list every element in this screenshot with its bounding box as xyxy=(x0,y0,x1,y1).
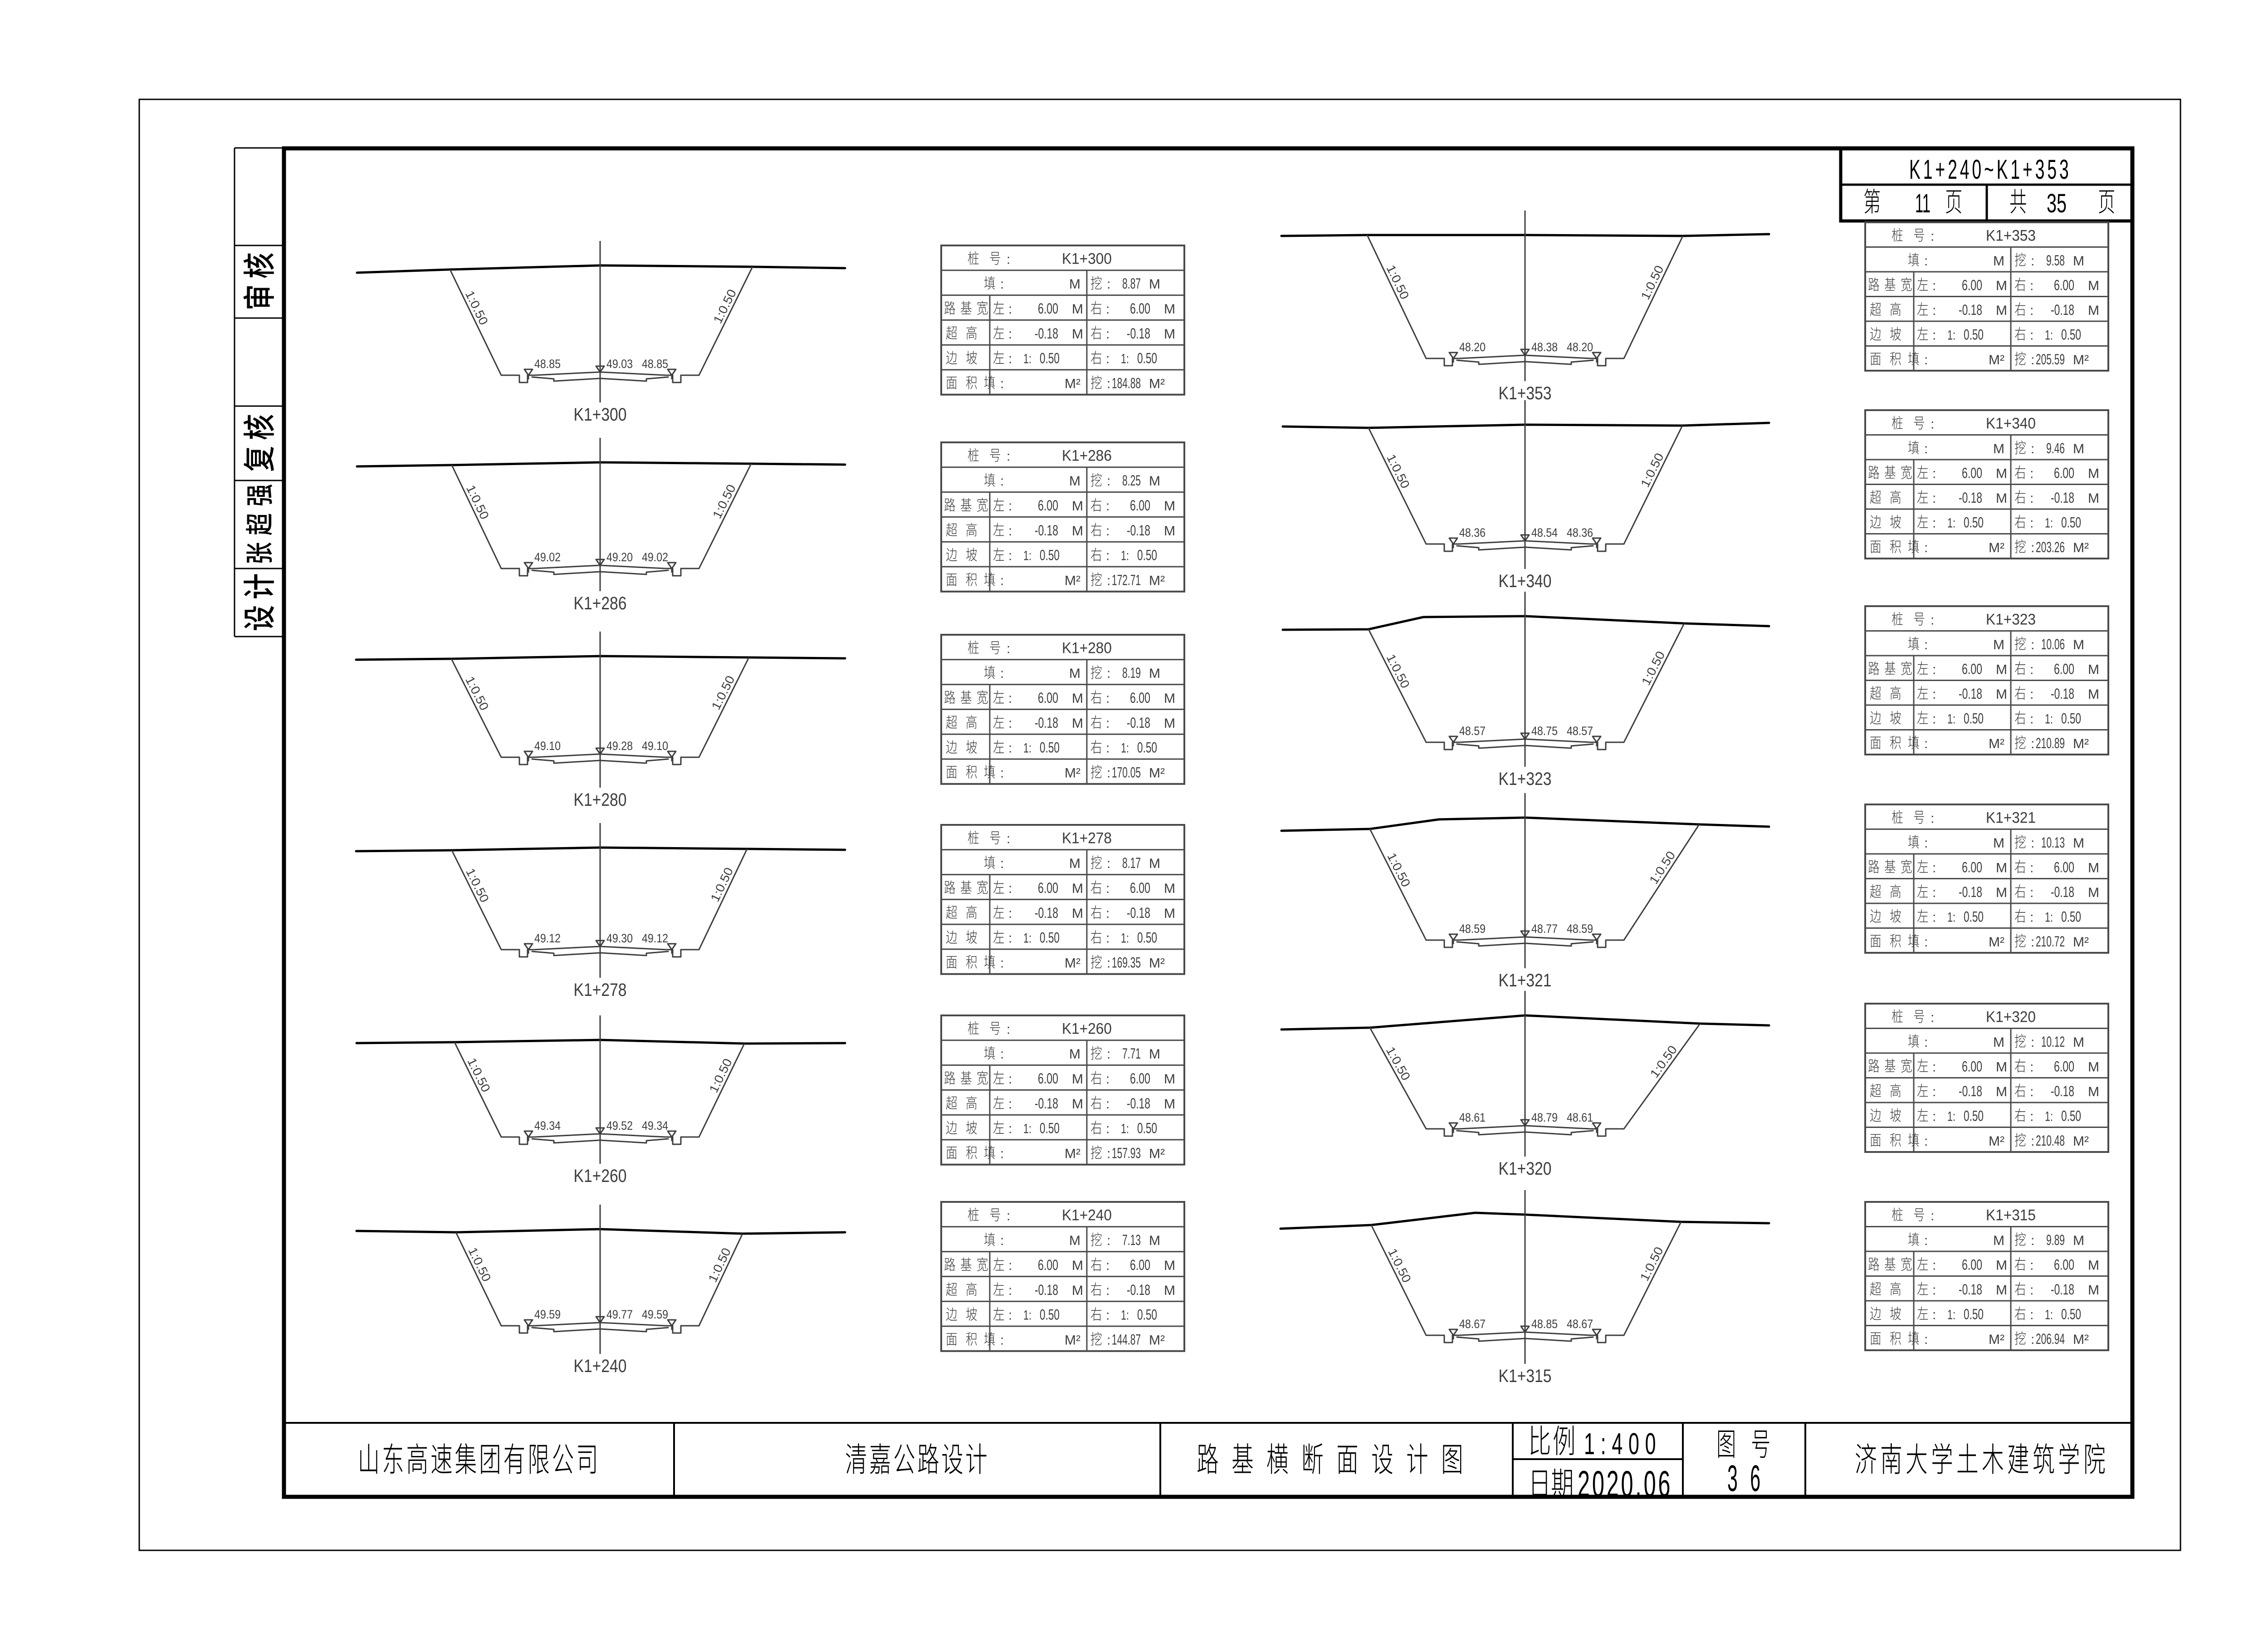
svg-text:M: M xyxy=(1069,474,1080,489)
svg-text::: : xyxy=(1932,466,1936,481)
svg-text::: : xyxy=(2030,1283,2033,1298)
svg-text:M: M xyxy=(1069,856,1080,871)
svg-text::: : xyxy=(1924,254,1928,269)
svg-text:-0.18: -0.18 xyxy=(2051,1281,2074,1298)
svg-text::: : xyxy=(1008,1097,1012,1112)
svg-text:M: M xyxy=(1164,1072,1175,1087)
svg-text::: : xyxy=(1931,417,1934,431)
svg-text:M: M xyxy=(2088,687,2099,702)
svg-text:1:: 1: xyxy=(1947,328,1955,343)
svg-text::: : xyxy=(1932,711,1936,726)
svg-text::: : xyxy=(2030,1307,2033,1322)
svg-text::: : xyxy=(1106,906,1110,921)
svg-text:48.67: 48.67 xyxy=(1459,1317,1486,1331)
svg-text::: : xyxy=(1106,327,1110,342)
svg-text:0.50: 0.50 xyxy=(1137,930,1157,946)
svg-text:48.20: 48.20 xyxy=(1459,340,1486,354)
svg-text::: : xyxy=(1008,931,1012,946)
svg-text::: : xyxy=(2030,515,2033,530)
svg-text::: : xyxy=(1932,278,1936,293)
svg-text:M: M xyxy=(2088,278,2099,293)
svg-text:210.89: 210.89 xyxy=(2036,735,2065,751)
svg-text::: : xyxy=(1008,906,1012,921)
svg-text:170.05: 170.05 xyxy=(1112,764,1141,780)
svg-text:6.00: 6.00 xyxy=(1130,300,1150,317)
svg-text::: : xyxy=(2030,885,2033,900)
svg-text:-0.18: -0.18 xyxy=(1127,1282,1150,1298)
svg-text::: : xyxy=(1000,765,1004,780)
svg-text:0.50: 0.50 xyxy=(1040,1120,1060,1137)
svg-text:157.93: 157.93 xyxy=(1112,1145,1141,1161)
svg-text::: : xyxy=(1932,687,1936,702)
svg-text:1:: 1: xyxy=(1121,1308,1129,1323)
svg-text::: : xyxy=(1107,956,1110,970)
svg-text:-0.18: -0.18 xyxy=(1959,884,1982,900)
svg-text:M: M xyxy=(1149,1047,1160,1062)
svg-text::: : xyxy=(1924,441,1928,456)
svg-text::: : xyxy=(1924,736,1928,751)
svg-text::: : xyxy=(1107,856,1110,871)
svg-text:49.10: 49.10 xyxy=(642,739,668,753)
svg-text:M: M xyxy=(1072,524,1083,539)
svg-text:48.85: 48.85 xyxy=(642,357,668,371)
svg-text::: : xyxy=(1924,353,1928,368)
svg-text:M: M xyxy=(1072,906,1083,921)
svg-text:K1+280: K1+280 xyxy=(1062,639,1112,657)
svg-text:1:: 1: xyxy=(1023,741,1031,756)
svg-text:1:: 1: xyxy=(1023,352,1031,367)
svg-text::: : xyxy=(1008,716,1012,731)
svg-text:6.00: 6.00 xyxy=(1962,661,1982,677)
svg-text:M²: M² xyxy=(1065,1146,1080,1161)
svg-text::: : xyxy=(1106,691,1110,706)
svg-text::: : xyxy=(1932,885,1936,900)
svg-text:48.20: 48.20 xyxy=(1567,340,1593,354)
svg-text:48.57: 48.57 xyxy=(1459,724,1486,738)
svg-text:1:: 1: xyxy=(2045,1109,2053,1124)
svg-text:M: M xyxy=(1993,254,2004,269)
svg-text:0.50: 0.50 xyxy=(1040,1307,1060,1323)
svg-text:169.35: 169.35 xyxy=(1112,954,1141,970)
svg-text::: : xyxy=(1007,1208,1010,1223)
svg-text:48.59: 48.59 xyxy=(1567,922,1593,936)
svg-text:0.50: 0.50 xyxy=(1137,1307,1157,1323)
svg-text:K1+240~K1+353: K1+240~K1+353 xyxy=(1909,154,2072,185)
svg-text:6.00: 6.00 xyxy=(1130,690,1150,706)
svg-text::: : xyxy=(2030,1109,2033,1124)
svg-text:184.88: 184.88 xyxy=(1112,375,1141,391)
svg-text:49.34: 49.34 xyxy=(642,1119,668,1132)
svg-text:M: M xyxy=(1996,662,2007,677)
svg-text:0.50: 0.50 xyxy=(1137,740,1157,756)
svg-text:6.00: 6.00 xyxy=(1130,880,1150,896)
svg-text::: : xyxy=(1106,741,1110,756)
svg-text:6.00: 6.00 xyxy=(2054,859,2074,875)
svg-text::: : xyxy=(1007,252,1010,267)
svg-text:M²: M² xyxy=(2073,1332,2089,1347)
svg-text:6.00: 6.00 xyxy=(1038,880,1058,896)
svg-text::: : xyxy=(1008,1122,1012,1137)
svg-text::: : xyxy=(1931,229,1934,244)
svg-text:-0.18: -0.18 xyxy=(1035,325,1058,342)
svg-text:35: 35 xyxy=(2047,189,2067,218)
svg-text:M: M xyxy=(1993,836,2004,851)
svg-text:1:: 1: xyxy=(1947,515,1955,530)
svg-text::: : xyxy=(2030,1084,2033,1099)
svg-text:K1+278: K1+278 xyxy=(1062,829,1112,847)
svg-text:49.10: 49.10 xyxy=(534,739,561,753)
svg-text::: : xyxy=(1007,831,1010,846)
svg-text:0.50: 0.50 xyxy=(1040,547,1060,564)
svg-text:1:: 1: xyxy=(1023,1308,1031,1323)
svg-text:M: M xyxy=(2088,1059,2099,1074)
svg-text:48.75: 48.75 xyxy=(1531,724,1558,738)
svg-text::: : xyxy=(2030,687,2033,702)
svg-text::: : xyxy=(1107,376,1110,391)
svg-text::: : xyxy=(1932,662,1936,677)
svg-text:M: M xyxy=(1164,327,1175,342)
svg-text:K1+300: K1+300 xyxy=(1062,250,1112,267)
svg-text:-0.18: -0.18 xyxy=(1127,905,1150,921)
svg-text:M: M xyxy=(1996,885,2007,900)
svg-text::: : xyxy=(2031,637,2034,652)
svg-text::: : xyxy=(1924,836,1928,851)
svg-text:210.48: 210.48 xyxy=(2036,1132,2065,1149)
svg-text::: : xyxy=(1107,474,1110,489)
svg-text:M: M xyxy=(1993,1035,2004,1050)
svg-text:6.00: 6.00 xyxy=(1962,859,1982,875)
svg-text:M: M xyxy=(1164,691,1175,706)
svg-text:6.00: 6.00 xyxy=(1962,1256,1982,1273)
svg-text::: : xyxy=(1000,1047,1004,1062)
svg-text:6.00: 6.00 xyxy=(1130,497,1150,514)
svg-text:1:: 1: xyxy=(1121,741,1129,756)
svg-text:M: M xyxy=(2088,303,2099,318)
svg-text:1:: 1: xyxy=(1947,1307,1955,1322)
svg-text:M: M xyxy=(1069,666,1080,681)
svg-text:M: M xyxy=(1164,499,1175,514)
svg-text:-0.18: -0.18 xyxy=(1959,302,1982,318)
svg-text:K1+323: K1+323 xyxy=(1499,769,1552,789)
svg-text:M: M xyxy=(1996,466,2007,481)
svg-text:M²: M² xyxy=(1149,376,1165,391)
svg-text::: : xyxy=(1107,1146,1110,1161)
svg-text:7.13: 7.13 xyxy=(1122,1232,1141,1248)
svg-text::: : xyxy=(2031,736,2034,751)
svg-text:10.12: 10.12 xyxy=(2041,1034,2065,1050)
svg-text:-0.18: -0.18 xyxy=(1127,325,1150,342)
svg-text:49.02: 49.02 xyxy=(642,550,668,564)
svg-text::: : xyxy=(2031,1035,2034,1050)
svg-text:0.50: 0.50 xyxy=(1964,1306,1984,1322)
svg-text:M: M xyxy=(1164,716,1175,731)
svg-text::: : xyxy=(2031,935,2034,950)
svg-text:M: M xyxy=(1164,524,1175,539)
svg-text::: : xyxy=(1000,1233,1004,1248)
svg-text:49.12: 49.12 xyxy=(534,931,561,945)
svg-text::: : xyxy=(2030,860,2033,875)
svg-text:M: M xyxy=(2088,860,2099,875)
svg-text:6.00: 6.00 xyxy=(1962,277,1982,293)
svg-text:49.02: 49.02 xyxy=(534,550,561,564)
svg-text:49.59: 49.59 xyxy=(642,1308,668,1321)
svg-text:M: M xyxy=(1993,637,2004,652)
svg-text:49.12: 49.12 xyxy=(642,931,668,945)
svg-text::: : xyxy=(1007,449,1010,464)
svg-text:6.00: 6.00 xyxy=(1038,497,1058,514)
svg-text:K1+280: K1+280 xyxy=(574,790,627,810)
svg-text::: : xyxy=(1106,352,1110,367)
svg-text:48.38: 48.38 xyxy=(1531,340,1558,354)
svg-text:M: M xyxy=(1996,303,2007,318)
svg-text:M: M xyxy=(2073,441,2084,456)
svg-text::: : xyxy=(2030,910,2033,925)
svg-text:210.72: 210.72 xyxy=(2036,933,2065,950)
svg-text:1:: 1: xyxy=(2045,910,2053,925)
svg-text::: : xyxy=(1932,1059,1936,1074)
svg-text:49.03: 49.03 xyxy=(606,357,633,371)
svg-text:1:: 1: xyxy=(1023,549,1031,564)
svg-text::: : xyxy=(1932,910,1936,925)
svg-text:6.00: 6.00 xyxy=(1962,465,1982,481)
svg-text:0.50: 0.50 xyxy=(1040,930,1060,946)
svg-text::: : xyxy=(2031,836,2034,851)
svg-text::: : xyxy=(1931,811,1934,826)
svg-text:M: M xyxy=(1993,441,2004,456)
svg-text::: : xyxy=(2031,254,2034,269)
svg-text:206.94: 206.94 xyxy=(2036,1331,2065,1347)
svg-text::: : xyxy=(2030,278,2033,293)
svg-text:1:: 1: xyxy=(1023,931,1031,946)
svg-text:M²: M² xyxy=(1149,573,1165,588)
svg-text:-0.18: -0.18 xyxy=(1035,1095,1058,1112)
svg-text::: : xyxy=(1000,277,1004,292)
svg-text:36: 36 xyxy=(1727,1457,1773,1499)
svg-text:203.26: 203.26 xyxy=(2036,539,2065,555)
svg-text:1:: 1: xyxy=(1121,549,1129,564)
svg-text::: : xyxy=(1106,1097,1110,1112)
svg-text:1:: 1: xyxy=(1947,1109,1955,1124)
svg-text:48.36: 48.36 xyxy=(1567,526,1593,539)
svg-text:8.17: 8.17 xyxy=(1122,855,1141,871)
svg-text:M: M xyxy=(1072,499,1083,514)
svg-text:M²: M² xyxy=(2073,736,2089,751)
svg-text:8.87: 8.87 xyxy=(1122,275,1141,292)
svg-text:M: M xyxy=(1149,856,1160,871)
svg-text:-0.18: -0.18 xyxy=(1959,1083,1982,1099)
svg-text:144.87: 144.87 xyxy=(1112,1331,1141,1348)
svg-text::: : xyxy=(1107,573,1110,588)
svg-text:M: M xyxy=(1072,716,1083,731)
svg-text::: : xyxy=(1000,1146,1004,1161)
svg-text:M²: M² xyxy=(1149,765,1165,780)
svg-text:K1+320: K1+320 xyxy=(1499,1159,1552,1179)
svg-text:48.67: 48.67 xyxy=(1567,1317,1593,1331)
svg-text:6.00: 6.00 xyxy=(1130,1257,1150,1273)
svg-text:48.54: 48.54 xyxy=(1531,526,1558,539)
svg-text::: : xyxy=(1000,1333,1004,1348)
svg-text:-0.18: -0.18 xyxy=(1035,522,1058,539)
svg-text::: : xyxy=(1008,1283,1012,1298)
svg-text:M²: M² xyxy=(1989,736,2004,751)
svg-text:49.30: 49.30 xyxy=(606,931,633,945)
svg-text::: : xyxy=(1106,499,1110,514)
svg-text::: : xyxy=(1924,1332,1928,1347)
svg-text::: : xyxy=(1000,956,1004,970)
svg-text:K1+240: K1+240 xyxy=(1062,1206,1112,1224)
svg-text:M²: M² xyxy=(2073,540,2089,555)
svg-text:K1+278: K1+278 xyxy=(574,980,627,1000)
svg-text:K1+340: K1+340 xyxy=(1499,571,1552,591)
svg-text::: : xyxy=(1107,666,1110,681)
svg-text:K1+340: K1+340 xyxy=(1986,415,2036,432)
svg-text:-0.18: -0.18 xyxy=(2051,302,2074,318)
svg-text:-0.18: -0.18 xyxy=(1959,686,1982,702)
svg-text:M: M xyxy=(2088,885,2099,900)
svg-text:6.00: 6.00 xyxy=(1038,1070,1058,1087)
svg-text::: : xyxy=(1106,524,1110,539)
svg-text::: : xyxy=(1931,613,1934,627)
svg-text:M: M xyxy=(1072,1097,1083,1112)
svg-text:-0.18: -0.18 xyxy=(1127,715,1150,731)
svg-text::: : xyxy=(2031,540,2034,555)
svg-text:M: M xyxy=(2088,1283,2099,1298)
svg-text:6.00: 6.00 xyxy=(2054,465,2074,481)
svg-text:M: M xyxy=(2073,1233,2084,1248)
svg-text:K1+286: K1+286 xyxy=(574,593,627,613)
svg-text::: : xyxy=(2031,441,2034,456)
svg-text::: : xyxy=(1924,637,1928,652)
svg-text:K1+321: K1+321 xyxy=(1499,970,1552,990)
svg-text::: : xyxy=(1932,1307,1936,1322)
svg-text:M: M xyxy=(1072,881,1083,896)
svg-text:M²: M² xyxy=(1989,1134,2004,1149)
svg-text:K1+260: K1+260 xyxy=(574,1166,627,1186)
svg-text::: : xyxy=(1008,352,1012,367)
svg-text:K1+315: K1+315 xyxy=(1499,1366,1552,1386)
svg-text:48.85: 48.85 xyxy=(534,357,561,371)
svg-text::: : xyxy=(1000,666,1004,681)
svg-text:-0.18: -0.18 xyxy=(1127,522,1150,539)
svg-text::: : xyxy=(1008,549,1012,564)
svg-text:0.50: 0.50 xyxy=(2061,908,2081,925)
svg-text:6.00: 6.00 xyxy=(1130,1070,1150,1087)
svg-text:10.13: 10.13 xyxy=(2041,834,2065,851)
svg-text:48.59: 48.59 xyxy=(1459,922,1486,936)
svg-text:M²: M² xyxy=(2073,353,2089,368)
svg-text:0.50: 0.50 xyxy=(1137,350,1157,367)
svg-text:-0.18: -0.18 xyxy=(2051,1083,2074,1099)
svg-text::: : xyxy=(1107,1047,1110,1062)
svg-text:0.50: 0.50 xyxy=(2061,326,2081,343)
svg-text:48.36: 48.36 xyxy=(1459,526,1486,539)
svg-text:M: M xyxy=(2073,836,2084,851)
svg-text:M: M xyxy=(1996,1258,2007,1273)
svg-text:M: M xyxy=(1996,1283,2007,1298)
svg-text::: : xyxy=(1008,881,1012,896)
svg-text::: : xyxy=(2031,353,2034,368)
svg-text::: : xyxy=(1106,1283,1110,1298)
svg-text::: : xyxy=(1008,1308,1012,1323)
svg-text::: : xyxy=(2030,662,2033,677)
svg-text:M²: M² xyxy=(1065,573,1080,588)
svg-text::: : xyxy=(1932,860,1936,875)
svg-text:K1+321: K1+321 xyxy=(1986,809,2036,826)
svg-text:-0.18: -0.18 xyxy=(2051,884,2074,900)
svg-text:M²: M² xyxy=(2073,935,2089,950)
svg-text::: : xyxy=(1924,1035,1928,1050)
svg-text:2020.06: 2020.06 xyxy=(1578,1464,1672,1505)
svg-text:M: M xyxy=(1996,687,2007,702)
svg-text::: : xyxy=(1932,303,1936,318)
svg-text::: : xyxy=(1106,549,1110,564)
svg-text::: : xyxy=(1007,641,1010,656)
svg-text:M²: M² xyxy=(1149,1146,1165,1161)
svg-text:-0.18: -0.18 xyxy=(1959,1281,1982,1298)
svg-text::: : xyxy=(1932,1258,1936,1273)
svg-text:M²: M² xyxy=(1149,956,1165,970)
svg-text:M: M xyxy=(1072,1258,1083,1273)
svg-text:K1+323: K1+323 xyxy=(1986,611,2036,628)
svg-text:M: M xyxy=(1072,327,1083,342)
svg-text::: : xyxy=(2030,303,2033,318)
svg-text:48.57: 48.57 xyxy=(1567,724,1593,738)
svg-text:M²: M² xyxy=(1149,1333,1165,1348)
svg-text:-0.18: -0.18 xyxy=(2051,490,2074,506)
svg-text:49.59: 49.59 xyxy=(534,1308,561,1321)
svg-text:1:: 1: xyxy=(1121,352,1129,367)
svg-text:M²: M² xyxy=(2073,1134,2089,1149)
svg-text:M: M xyxy=(1072,691,1083,706)
svg-text:0.50: 0.50 xyxy=(2061,1108,2081,1124)
svg-text:M: M xyxy=(1996,1084,2007,1099)
svg-text:M²: M² xyxy=(1989,935,2004,950)
svg-text:9.46: 9.46 xyxy=(2046,440,2065,456)
svg-text:0.50: 0.50 xyxy=(1137,547,1157,564)
svg-text:49.28: 49.28 xyxy=(606,739,633,753)
svg-text::: : xyxy=(2030,1059,2033,1074)
svg-text::: : xyxy=(1924,935,1928,950)
svg-text:-0.18: -0.18 xyxy=(1959,490,1982,506)
svg-text::: : xyxy=(1106,1258,1110,1273)
svg-text:10.06: 10.06 xyxy=(2041,636,2065,652)
svg-text:M: M xyxy=(2088,662,2099,677)
svg-text:6.00: 6.00 xyxy=(1038,1257,1058,1273)
svg-text:K1+286: K1+286 xyxy=(1062,447,1112,464)
svg-text:M: M xyxy=(1069,1233,1080,1248)
svg-text::: : xyxy=(1008,1258,1012,1273)
svg-text::: : xyxy=(1000,573,1004,588)
svg-text::: : xyxy=(1932,491,1936,506)
svg-text::: : xyxy=(2030,491,2033,506)
svg-text::: : xyxy=(1107,765,1110,780)
svg-text::: : xyxy=(2030,711,2033,726)
svg-text:8.19: 8.19 xyxy=(1122,665,1141,681)
svg-text:-0.18: -0.18 xyxy=(1035,715,1058,731)
svg-text:M: M xyxy=(1996,491,2007,506)
svg-text:172.71: 172.71 xyxy=(1112,572,1141,588)
svg-text:M²: M² xyxy=(1989,540,2004,555)
svg-text:-0.18: -0.18 xyxy=(2051,686,2074,702)
svg-text::: : xyxy=(1924,1134,1928,1149)
svg-text::: : xyxy=(1007,1022,1010,1037)
svg-text:6.00: 6.00 xyxy=(2054,277,2074,293)
svg-text:8.25: 8.25 xyxy=(1122,472,1141,489)
svg-text::: : xyxy=(1000,474,1004,489)
svg-text:0.50: 0.50 xyxy=(1964,710,1984,726)
svg-text:M: M xyxy=(1993,1233,2004,1248)
svg-text::: : xyxy=(1106,716,1110,731)
